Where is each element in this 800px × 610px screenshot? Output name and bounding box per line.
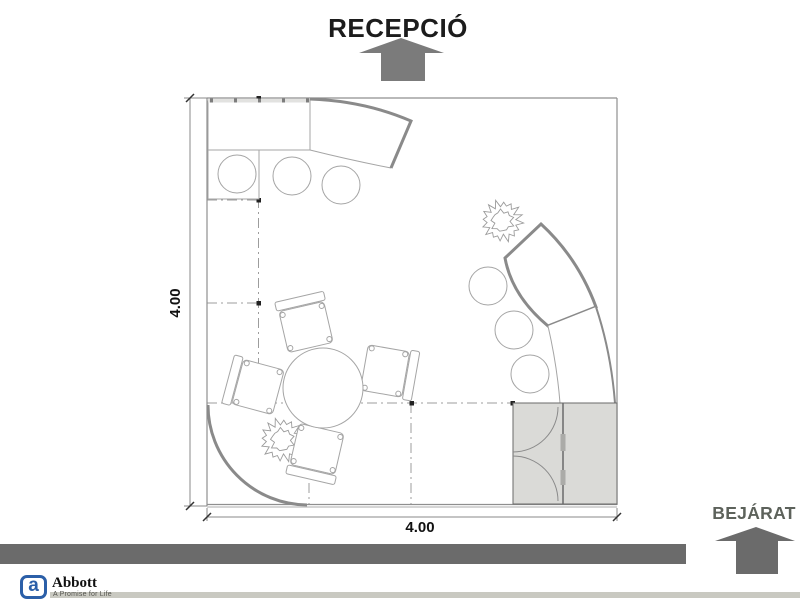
slide-canvas: RECEPCIÓ xyxy=(0,0,800,610)
reception-label: RECEPCIÓ xyxy=(328,13,468,43)
round-table xyxy=(283,348,363,428)
meeting-table-group xyxy=(222,291,420,485)
chair xyxy=(275,291,335,353)
brand-name: Abbott xyxy=(52,575,97,592)
entrance-arrow-icon xyxy=(715,527,795,574)
stool xyxy=(322,166,360,204)
chair xyxy=(222,355,285,417)
stool xyxy=(495,311,533,349)
footer-bar xyxy=(0,544,686,564)
abbott-logo-icon: a xyxy=(20,575,47,599)
dimension-left-value: 4.00 xyxy=(167,288,184,317)
entrance-label: BEJÁRAT xyxy=(712,502,795,523)
stool xyxy=(218,155,256,193)
brand-rule xyxy=(50,592,800,598)
dimension-bottom-value: 4.00 xyxy=(405,519,434,536)
reception-arrow-icon xyxy=(359,38,444,81)
stool xyxy=(469,267,507,305)
stool xyxy=(273,157,311,195)
dimension-left: 4.00 xyxy=(167,94,207,510)
brand-tagline: A Promise for Life xyxy=(53,591,112,598)
chair xyxy=(360,343,420,401)
stool xyxy=(511,355,549,393)
dimension-bottom: 4.00 xyxy=(203,508,621,536)
storage-room xyxy=(513,403,617,504)
floor-plan-figure: RECEPCIÓ xyxy=(0,0,800,610)
plant-icon xyxy=(483,200,524,241)
curved-counter-top xyxy=(310,99,411,168)
